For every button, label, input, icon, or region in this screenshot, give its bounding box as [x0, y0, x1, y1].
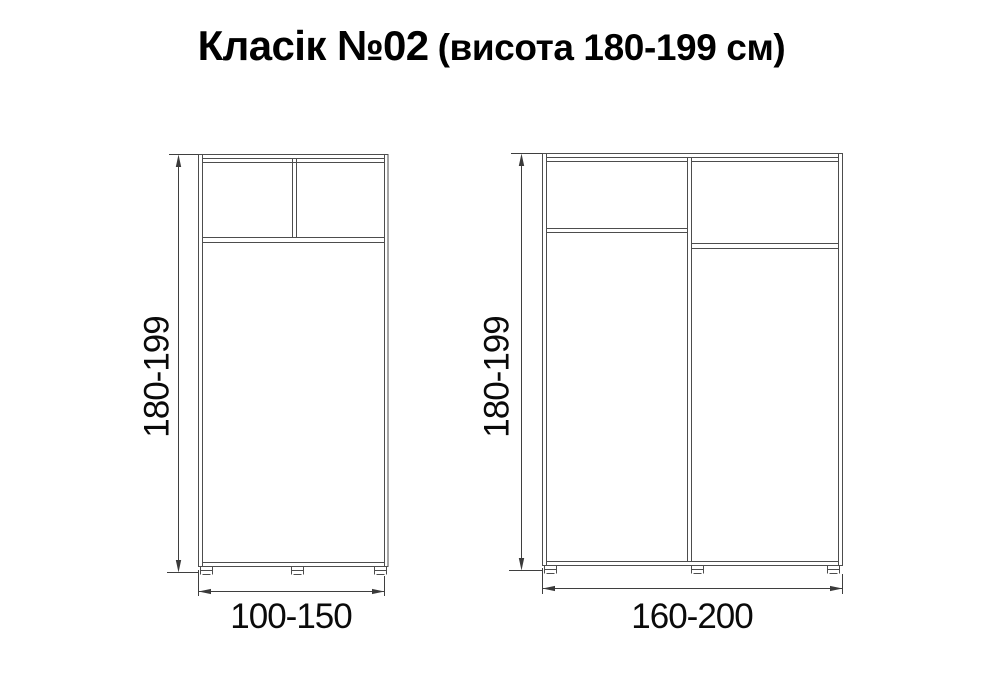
left-wardrobe-feet	[201, 567, 387, 575]
left-wardrobe-drawing	[199, 155, 389, 575]
right-wardrobe-drawing	[543, 154, 843, 574]
left-wardrobe-shelf	[203, 238, 385, 243]
right-height-label: 180-199	[480, 316, 515, 437]
right-width-label: 160-200	[631, 599, 752, 634]
right-wardrobe-left-shelf	[547, 229, 688, 233]
left-wardrobe-frame	[199, 155, 389, 567]
left-height-label: 180-199	[140, 316, 175, 437]
right-wardrobe-frame	[543, 154, 843, 566]
right-wardrobe-center-divider	[688, 158, 692, 562]
left-wardrobe-top-doors	[203, 159, 385, 238]
right-wardrobe-right-shelf	[692, 244, 839, 249]
left-width-label: 100-150	[230, 599, 351, 634]
furniture-dimension-diagram: Класік №02(висота 180-199 см)	[0, 0, 983, 700]
right-wardrobe-feet	[545, 566, 840, 574]
right-width-dimension	[543, 568, 843, 594]
